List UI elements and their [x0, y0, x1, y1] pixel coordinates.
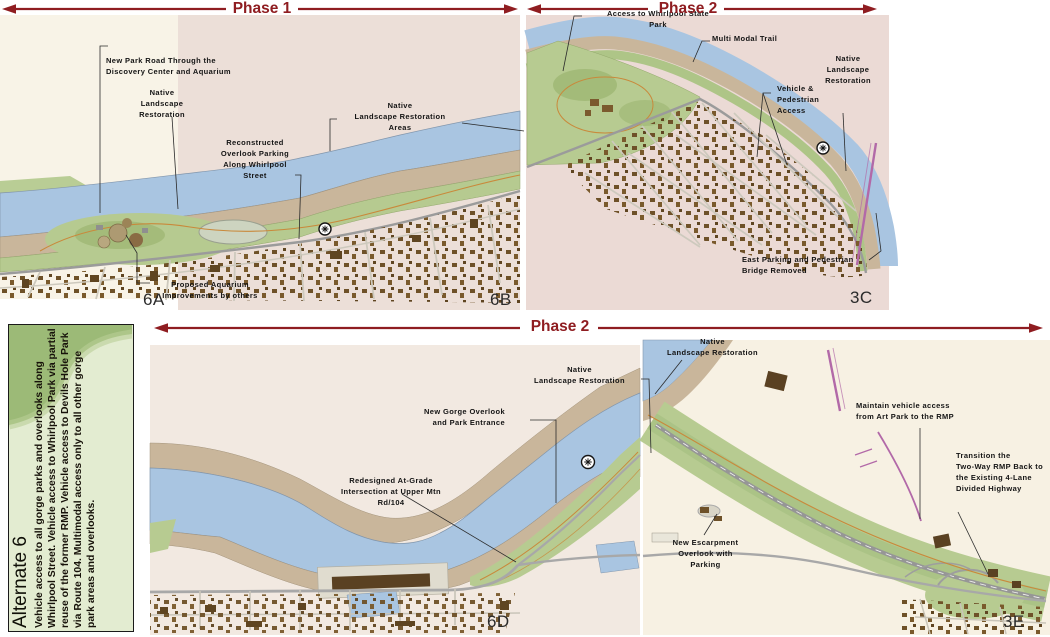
annotation-east-parking-bridge-removed: East Parking and Pedestrian Bridge Remov… [742, 255, 902, 277]
section-label-6d: 6D [487, 612, 510, 632]
annotation-transition-rmp: Transition the Two-Way RMP Back to the E… [956, 451, 1050, 495]
alternate-6-text-block: Alternate 6 Vehicle access to all gorge … [11, 328, 129, 628]
trail-marker-icon [582, 456, 595, 469]
annotation-new-escarpment-overlook: New Escarpment Overlook with Parking [653, 538, 758, 571]
phase1-label: Phase 1 [224, 0, 300, 18]
overlook-parking-oval [199, 220, 267, 244]
section-label-3e: 3E [1003, 612, 1025, 632]
trail-marker-icon [319, 223, 331, 235]
urban-grid [150, 593, 515, 633]
annotation-native-landscape-east: Native Landscape Restoration [806, 54, 890, 87]
alternate-6-description: Vehicle access to all gorge parks and ov… [33, 328, 99, 628]
annotation-new-gorge-overlook: New Gorge Overlook and Park Entrance [375, 407, 505, 429]
annotation-new-park-road: New Park Road Through the Discovery Cent… [106, 56, 306, 78]
annotation-native-landscape-west: Native Landscape Restoration [112, 88, 212, 121]
section-label-6a: 6A [143, 290, 165, 310]
annotation-reconstructed-overlook-parking: Reconstructed Overlook Parking Along Whi… [200, 138, 310, 182]
plan-page: Phase 1 Phase 2 Phase 2 New Park Road Th… [0, 0, 1050, 637]
section-label-3c: 3C [850, 288, 873, 308]
alternate-6-title: Alternate 6 [11, 328, 31, 628]
phase2-top-label: Phase 2 [650, 0, 726, 18]
annotation-multi-modal-trail: Multi Modal Trail [712, 34, 832, 45]
trail-marker-icon [817, 142, 829, 154]
annotation-native-landscape-upper: Native Landscape Restoration [645, 337, 780, 359]
alternate-6-panel: Alternate 6 Vehicle access to all gorge … [8, 324, 134, 632]
annotation-maintain-vehicle-access: Maintain vehicle access from Art Park to… [856, 401, 1026, 423]
annotation-native-landscape-areas: Native Landscape Restoration Areas [335, 101, 465, 134]
annotation-native-landscape-lower: Native Landscape Restoration [512, 365, 647, 387]
section-label-6b: 6B [490, 290, 512, 310]
annotation-redesigned-intersection: Redesigned At-Grade Intersection at Uppe… [330, 476, 452, 509]
phase2-bottom-label: Phase 2 [522, 318, 598, 336]
annotation-vehicle-pedestrian-access: Vehicle & Pedestrian Access [777, 84, 867, 117]
